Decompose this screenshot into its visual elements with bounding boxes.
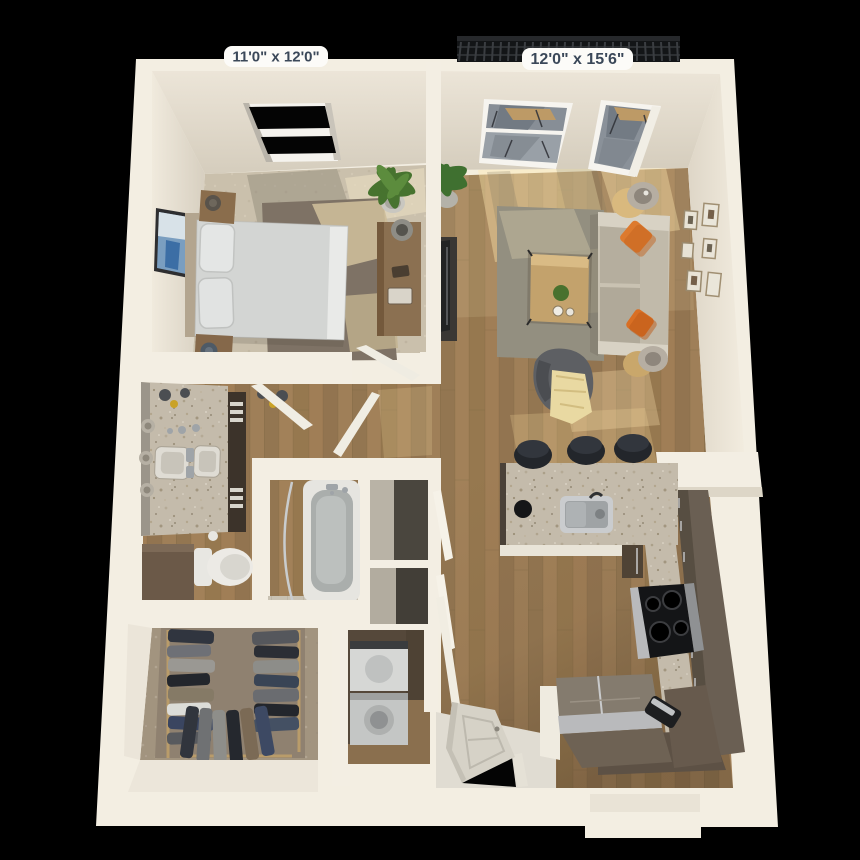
svg-text:12'0" x 15'6": 12'0" x 15'6" (531, 51, 625, 68)
svg-text:11'0" x 12'0": 11'0" x 12'0" (232, 49, 319, 66)
